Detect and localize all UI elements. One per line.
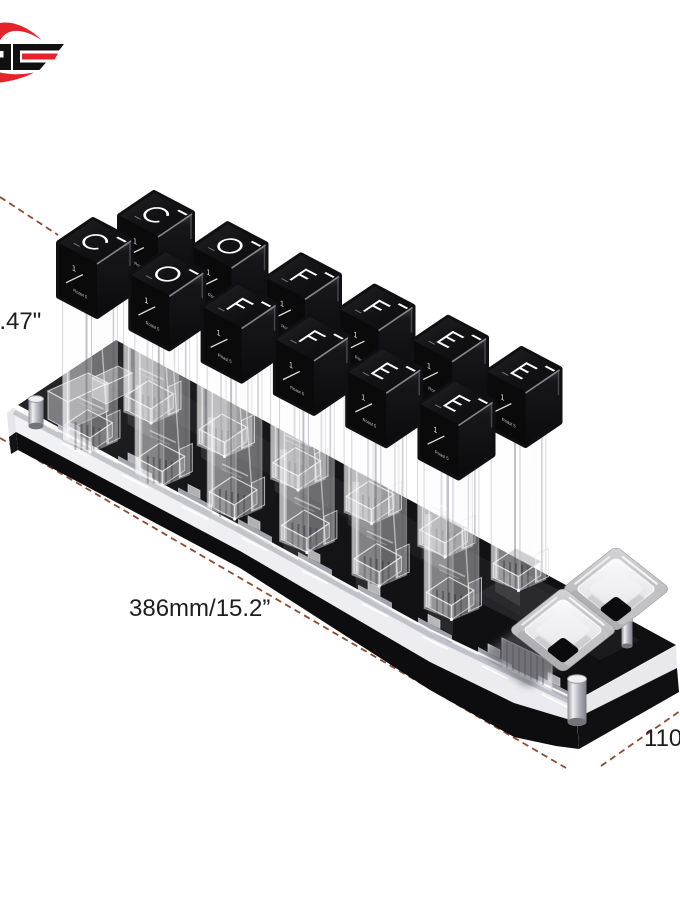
svg-text:110: 110 bbox=[644, 725, 680, 752]
svg-text:5.47": 5.47" bbox=[0, 308, 41, 335]
svg-text:386mm/15.2”: 386mm/15.2” bbox=[129, 595, 270, 622]
